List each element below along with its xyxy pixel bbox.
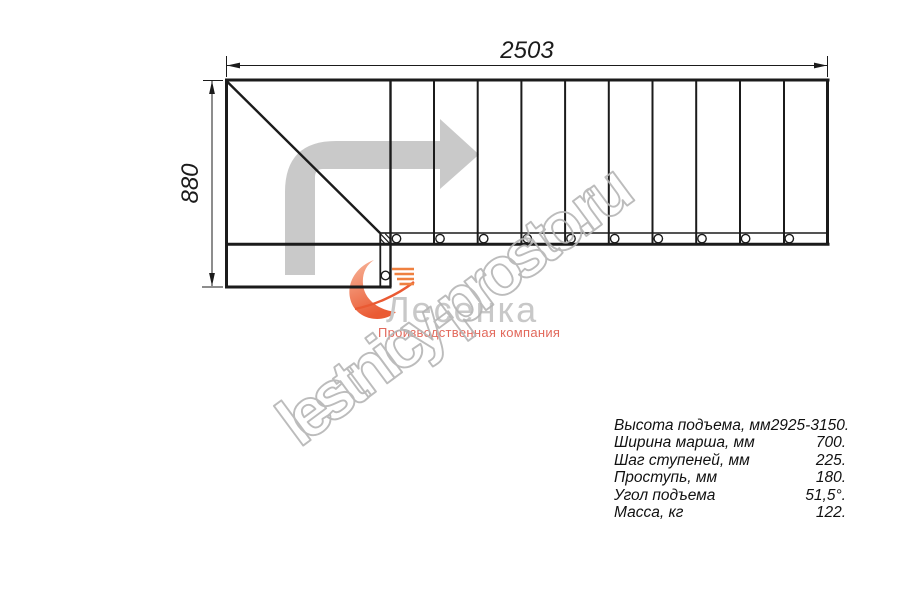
dimension-width: 2503 (227, 37, 828, 77)
spec-row-height: Высота подъема, мм 2925-3150. (614, 417, 846, 434)
spec-value: 122. (816, 504, 846, 521)
direction-arrow (285, 119, 479, 275)
spec-row-mass: Масса, кг 122. (614, 504, 846, 521)
spec-row-flight-width: Ширина марша, мм 700. (614, 434, 846, 451)
spec-label: Угол подъема (614, 487, 715, 504)
spec-label: Высота подъема, мм (614, 417, 771, 434)
specifications-list: Высота подъема, мм 2925-3150. Ширина мар… (614, 417, 846, 521)
bolt-holes (381, 234, 793, 279)
post-hatch (380, 233, 391, 244)
dimension-height: 880 (177, 81, 223, 288)
spec-label: Масса, кг (614, 504, 683, 521)
spec-label: Шаг ступеней, мм (614, 452, 750, 469)
spec-value: 51,5°. (805, 487, 846, 504)
dimension-height-label: 880 (177, 163, 204, 204)
spec-label: Проступь, мм (614, 469, 717, 486)
spec-value: 2925-3150. (771, 417, 849, 434)
logo-brand-text: Лесенка (386, 292, 538, 328)
stair-plan-page: 2503 880 Лесенка Производственная компан… (0, 0, 900, 600)
spec-row-step-pitch: Шаг ступеней, мм 225. (614, 452, 846, 469)
spec-value: 225. (816, 452, 846, 469)
plan-linework (225, 79, 830, 289)
spec-label: Ширина марша, мм (614, 434, 755, 451)
dimension-width-label: 2503 (499, 37, 554, 64)
spec-value: 180. (816, 469, 846, 486)
logo-tagline-text: Производственная компания (378, 326, 560, 339)
spec-value: 700. (816, 434, 846, 451)
spec-row-tread: Проступь, мм 180. (614, 469, 846, 486)
spec-row-angle: Угол подъема 51,5°. (614, 487, 846, 504)
